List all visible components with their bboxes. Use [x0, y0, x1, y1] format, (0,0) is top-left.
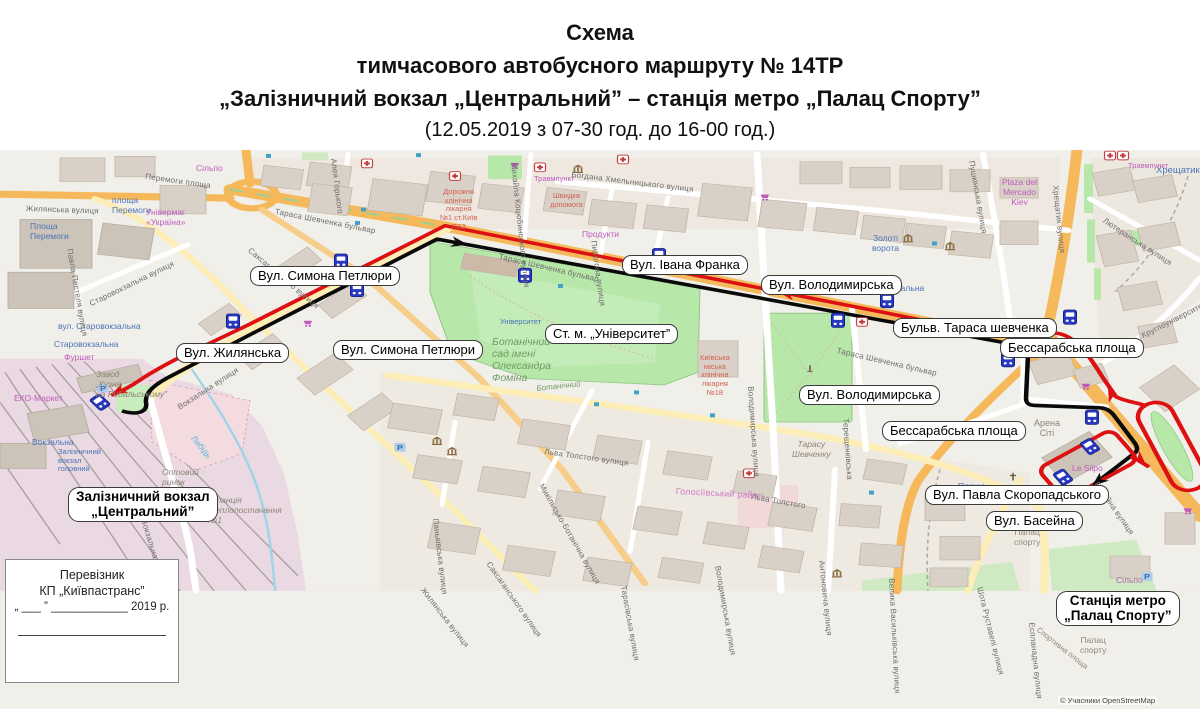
- stop-callout: Вул. Симона Петлюри: [250, 266, 400, 286]
- place-label: Площа Перемоги: [30, 222, 69, 242]
- place-label: Швидка допомога: [550, 192, 583, 209]
- place-label: Травмпункт: [1128, 162, 1168, 171]
- stop-callout: Станція метро„Палац Спорту”: [1056, 591, 1180, 626]
- stop-callout: Вул. Жилянська: [176, 343, 289, 363]
- osm-attribution: © Учасники OpenStreetMap: [1058, 696, 1157, 705]
- stop-callout: Вул. Івана Франка: [622, 255, 748, 275]
- stop-callout: Бессарабська площа: [1000, 338, 1144, 358]
- place-label: ЕКО-Маркет: [14, 394, 63, 404]
- place-label: Тарасу Шевченку: [792, 440, 831, 460]
- bus-stop-icon: [227, 314, 240, 328]
- hospital-cross-icon: [535, 163, 546, 172]
- place-label: Оптовий ринок: [162, 468, 199, 488]
- bus-stop-icon: [881, 293, 894, 307]
- place-label: Сільпо: [196, 164, 223, 174]
- place-label: Університет: [500, 318, 541, 327]
- stop-callout: Бессарабська площа: [882, 421, 1026, 441]
- place-label: Палац спорту: [1080, 636, 1106, 656]
- place-label: Продукти: [582, 230, 619, 240]
- parking-icon: [395, 443, 406, 452]
- hospital-cross-icon: [1118, 151, 1129, 160]
- place-label: Le Silpo: [1072, 464, 1103, 474]
- place-label: Травмпункт: [534, 175, 574, 184]
- schema-title-line1: Схема: [0, 16, 1200, 49]
- schema-title-line4: (12.05.2019 з 07-30 год. до 16-00 год.): [0, 115, 1200, 146]
- place-label: Універмаг «Україна»: [146, 208, 185, 228]
- place-label: Сільпо: [1116, 576, 1143, 586]
- schema-header: Схема тимчасового автобусного маршруту №…: [0, 0, 1200, 150]
- place-label: Завод „Кузня на Рибальському”: [96, 370, 167, 399]
- stop-callout: Залізничний вокзал„Центральний”: [68, 487, 218, 522]
- carrier-box: Перевізник КП „Київпастранс” „ ___ ” ___…: [5, 559, 179, 683]
- route-schema-page: Схема тимчасового автобусного маршруту №…: [0, 0, 1200, 709]
- place-label: вул. Старовокзальна: [58, 322, 141, 332]
- hospital-cross-icon: [362, 159, 373, 168]
- bus-stop-icon: [1064, 310, 1077, 324]
- place-label: Станція теплопостачання №1: [208, 496, 282, 525]
- stop-callout: Ст. м. „Університет”: [545, 324, 678, 344]
- place-label: Київська міська клінічна лікарня №18: [700, 354, 730, 397]
- place-label: Plaza del Mercado Kiev: [1002, 178, 1037, 207]
- stop-callout: Вул. Симона Петлюри: [333, 340, 483, 360]
- hospital-cross-icon: [618, 155, 629, 164]
- carrier-line1: Перевізник: [6, 568, 178, 582]
- bus-stop-icon: [1086, 410, 1099, 424]
- parking-icon: [1142, 572, 1153, 581]
- carrier-date-line: „ ___ ” ____________ 2019 р.: [6, 601, 178, 613]
- place-label: Залізничний вокзал головний: [58, 448, 101, 474]
- place-label: Ботанічний сад імені Олександра Фоміна: [492, 336, 551, 384]
- carrier-signature-line: [18, 635, 166, 636]
- hospital-cross-icon: [1105, 151, 1116, 160]
- place-label: Дорожня клінічна лікарня №1 ст.Київ ПЗЗ: [440, 188, 477, 231]
- stop-callout: Вул. Володимирська: [761, 275, 902, 295]
- place-label: Арена Сіті: [1034, 418, 1060, 439]
- stop-callout: Бульв. Тараса шевченка: [893, 318, 1057, 338]
- schema-title-line2: тимчасового автобусного маршруту № 14ТР: [0, 49, 1200, 82]
- stop-callout: Вул. Басейна: [986, 511, 1083, 531]
- carrier-line2: КП „Київпастранс”: [6, 584, 178, 598]
- stop-callout: Вул. Павла Скоропадського: [925, 485, 1109, 505]
- bus-stop-icon: [832, 313, 845, 327]
- hospital-cross-icon: [450, 172, 461, 181]
- place-label: Фуршет: [64, 353, 95, 363]
- place-label: площа Перемоги: [112, 196, 151, 216]
- hospital-cross-icon: [857, 318, 868, 327]
- place-label: Золоті ворота: [872, 234, 899, 254]
- stop-callout: Вул. Володимирська: [799, 385, 940, 405]
- schema-title-line3: „Залізничний вокзал „Центральний” – стан…: [0, 82, 1200, 115]
- place-label: Старовокзальна: [54, 340, 119, 350]
